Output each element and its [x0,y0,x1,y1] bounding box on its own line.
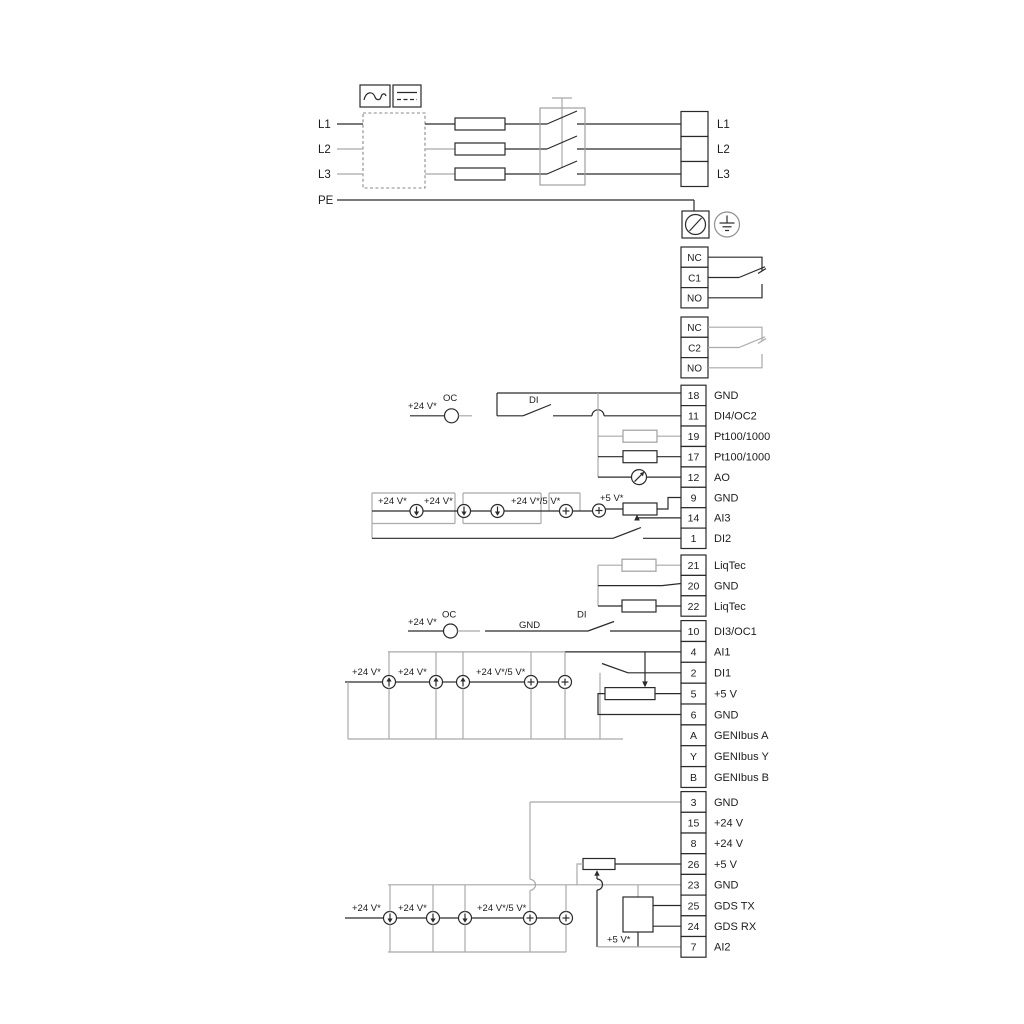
terminal-number: 4 [691,647,697,659]
di4-24v-label: +24 V* [408,401,437,412]
current-source-down-icon [427,912,440,925]
relay1-no: NO [687,294,702,305]
current-source-down-icon [458,505,471,518]
terminal-label: AO [714,472,730,484]
terminal-label: DI3/OC1 [714,626,757,638]
terminal-number: 24 [688,921,700,933]
terminal-number: 1 [691,533,697,545]
ai2-24v-5v-label: +24 V*/5 V* [477,903,527,914]
wiper-arrow [594,870,599,876]
ai3-5v-label: +5 V* [600,493,624,504]
wiring-diagram: L1 L2 L3 PE [0,0,1024,1024]
pe-wiring [337,200,694,211]
terminal-number: 17 [688,452,700,464]
relay2-contact-icon [708,327,766,368]
terminal-label: +24 V [714,838,744,850]
relay2-c2: C2 [688,343,701,354]
di4-oc-label: OC [443,393,457,404]
relay1-nc: NC [687,253,701,264]
current-source-down-icon [459,912,472,925]
current-source-up-icon [383,676,396,689]
di2-switch-icon [613,528,641,539]
terminal-label: GDS TX [714,900,755,912]
source-plus-icon [559,676,572,689]
relay2-nc: NC [687,323,701,334]
terminal-strip-4: 3GND 15+24 V 8+24 V 26+5 V 23GND 25GDS T… [681,792,757,958]
analog-output-meter-icon [632,470,647,485]
gds-sensor-box: +5 V* [607,885,681,947]
di1-switch-icon [602,664,628,673]
terminal-number: 19 [688,431,700,443]
source-plus-icon [525,676,538,689]
source-plus-icon [593,504,606,517]
terminal-label: GND [714,709,739,721]
terminal-number: 14 [688,513,700,525]
relay-2: NC C2 NO [681,317,766,378]
terminal-number: 23 [688,880,700,892]
io-wiring-top: +24 V* OC DI [372,393,681,538]
terminal-label: +5 V [714,688,738,700]
terminal-number: 18 [688,390,700,402]
terminal-label: AI1 [714,647,731,659]
terminal-label: DI1 [714,668,731,680]
terminal-label: Pt100/1000 [714,452,770,464]
dc-icon [393,85,421,107]
terminal-strip-3: 10DI3/OC1 4AI1 2DI1 5+5 V 6GND AGENIbus … [681,621,769,788]
terminal-label: DI4/OC2 [714,411,757,423]
ai3-sources: +24 V* +24 V* +24 V*/5 V* +5 V* [372,493,624,538]
current-source-down-icon [384,912,397,925]
terminal-number: 9 [691,492,697,504]
terminal-label: GND [714,580,739,592]
potentiometer-icon [583,859,615,870]
relay1-c1: C1 [688,273,701,284]
terminal-number: 25 [688,900,700,912]
terminal-label: Pt100/1000 [714,431,770,443]
terminal-label: GDS RX [714,921,757,933]
io-wiring-bottom: +5 V* +24 V* +24 V* +24 V*/5 V* [345,802,681,952]
terminal-label: AI2 [714,942,731,954]
mains-terminal-block: L1 L2 L3 [681,112,730,187]
ai1-24v-b-label: +24 V* [398,667,427,678]
ai2-24v-a-label: +24 V* [352,903,381,914]
terminal-number: 22 [688,601,700,613]
output-label-l2: L2 [717,144,730,156]
terminal-number: 15 [688,817,700,829]
potentiometer-icon [605,688,655,700]
terminal-number: 7 [691,942,697,954]
terminal-label: LiqTec [714,601,746,613]
terminal-label: GENIbus Y [714,751,769,763]
relay1-contact-icon [708,257,766,298]
input-label-l2: L2 [318,144,331,156]
disconnect-switch-icon [540,98,585,185]
ai3-24v-a-label: +24 V* [378,496,407,507]
open-collector-icon [444,624,458,638]
terminal-label: GND [714,492,739,504]
input-label-pe: PE [318,195,334,207]
terminal-label: LiqTec [714,560,746,572]
terminal-strip-2: 21LiqTec 20GND 22LiqTec [681,555,746,616]
terminal-number: B [690,772,697,784]
di3-gnd-label: GND [519,620,540,631]
ac-wave-icon [360,85,390,107]
terminal-number: 2 [691,668,697,680]
terminal-label: GENIbus A [714,730,769,742]
terminal-number: 20 [688,580,700,592]
current-source-up-icon [430,676,443,689]
terminal-label: AI3 [714,513,731,525]
di3-switch-icon [588,622,614,632]
protective-earth-icon [715,212,740,237]
terminal-label: GND [714,797,739,809]
io-wiring-middle: +24 V* OC GND DI +24 V* +24 V* +24 V*/5 … [345,610,681,740]
source-plus-icon [524,912,537,925]
source-plus-icon [560,912,573,925]
relay-1: NC C1 NO [681,247,766,308]
terminal-number: 26 [688,859,700,871]
input-label-l3: L3 [318,169,331,181]
terminal-number: 10 [688,626,700,638]
output-label-l1: L1 [717,119,730,131]
terminal-number: 8 [691,838,697,850]
terminal-number: 6 [691,709,697,721]
resistor-icon [622,600,656,612]
source-plus-icon [560,505,573,518]
terminal-number: 3 [691,797,697,809]
terminal-label: +5 V [714,859,738,871]
terminal-label: GND [714,390,739,402]
phase-wires [337,124,681,174]
terminal-number: 11 [688,411,699,423]
wiper-arrow [642,681,648,687]
current-source-down-icon [410,505,423,518]
resistor-icon [622,559,656,571]
di3-24v-label: +24 V* [408,617,437,628]
terminal-label: GND [714,880,739,892]
terminal-label: DI2 [714,533,731,545]
potentiometer-icon [623,503,657,515]
terminal-number: 12 [688,472,700,484]
current-source-down-icon [491,505,504,518]
fuse-icons [455,118,505,180]
ai3-24v-5v-label: +24 V*/5 V* [511,496,561,507]
diagram-canvas: L1 L2 L3 PE [0,0,1024,1024]
ai2-5v-label: +5 V* [607,935,631,946]
terminal-number: 21 [688,560,700,572]
terminal-number: Y [690,751,697,763]
terminal-label: +24 V [714,817,744,829]
current-source-up-icon [457,676,470,689]
liqtec-wiring [598,559,681,612]
ai1-24v-a-label: +24 V* [352,667,381,678]
filter-box [363,113,425,188]
output-label-l3: L3 [717,169,730,181]
di4-di-label: DI [529,395,539,406]
ai1-24v-5v-label: +24 V*/5 V* [476,667,526,678]
terminal-number: 5 [691,688,697,700]
di4-switch-icon [523,405,551,416]
terminal-number: A [690,730,697,742]
open-collector-icon [445,409,459,423]
resistor-icon [623,430,657,442]
screw-terminal-icon [682,211,709,238]
ai3-24v-b-label: +24 V* [424,496,453,507]
terminal-strip-1: 18GND 11DI4/OC2 19Pt100/1000 17Pt100/100… [681,385,770,548]
terminal-label: GENIbus B [714,772,769,784]
relay2-no: NO [687,364,702,375]
input-label-l1: L1 [318,119,331,131]
power-section: L1 L2 L3 PE [318,85,740,238]
ai2-24v-b-label: +24 V* [398,903,427,914]
di3-di-label: DI [577,610,587,621]
resistor-icon [623,451,657,463]
di3-oc-label: OC [442,610,456,621]
ai1-sources: +24 V* +24 V* +24 V*/5 V* [345,652,623,739]
ai2-sources: +24 V* +24 V* +24 V*/5 V* [345,885,573,952]
